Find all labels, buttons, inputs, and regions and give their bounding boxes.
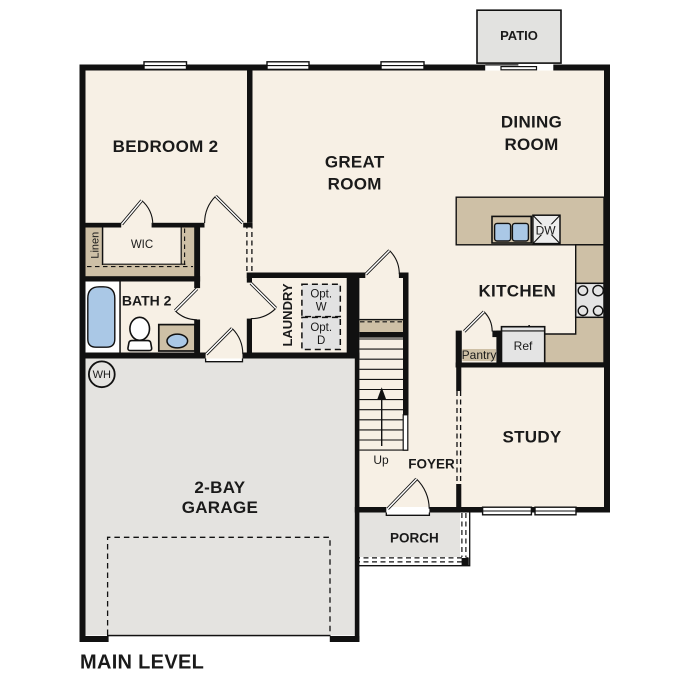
svg-text:Linen: Linen bbox=[89, 232, 101, 259]
svg-text:PORCH: PORCH bbox=[390, 530, 439, 545]
svg-text:DW: DW bbox=[536, 223, 557, 237]
svg-text:D: D bbox=[317, 335, 325, 347]
svg-text:FOYER: FOYER bbox=[408, 457, 455, 472]
svg-text:Opt.: Opt. bbox=[310, 288, 332, 300]
svg-text:Ref: Ref bbox=[514, 339, 533, 353]
svg-text:GREAT: GREAT bbox=[325, 153, 385, 172]
svg-text:BEDROOM 2: BEDROOM 2 bbox=[113, 137, 219, 156]
svg-text:KITCHEN: KITCHEN bbox=[478, 282, 556, 301]
svg-text:ROOM: ROOM bbox=[504, 135, 558, 154]
svg-text:PATIO: PATIO bbox=[500, 28, 538, 43]
svg-text:Up: Up bbox=[373, 453, 389, 467]
svg-text:WH: WH bbox=[93, 369, 111, 381]
svg-text:2-BAY: 2-BAY bbox=[194, 478, 245, 497]
svg-text:W: W bbox=[316, 302, 327, 314]
svg-text:BATH 2: BATH 2 bbox=[122, 292, 172, 308]
svg-text:Opt.: Opt. bbox=[310, 322, 332, 334]
svg-text:STUDY: STUDY bbox=[502, 428, 561, 447]
svg-text:MAIN LEVEL: MAIN LEVEL bbox=[80, 651, 204, 673]
svg-text:WIC: WIC bbox=[131, 239, 153, 251]
svg-text:ROOM: ROOM bbox=[328, 174, 382, 193]
svg-text:DINING: DINING bbox=[501, 112, 562, 131]
svg-text:LAUNDRY: LAUNDRY bbox=[280, 283, 295, 346]
svg-text:Pantry: Pantry bbox=[462, 348, 497, 362]
svg-text:GARAGE: GARAGE bbox=[182, 498, 258, 517]
